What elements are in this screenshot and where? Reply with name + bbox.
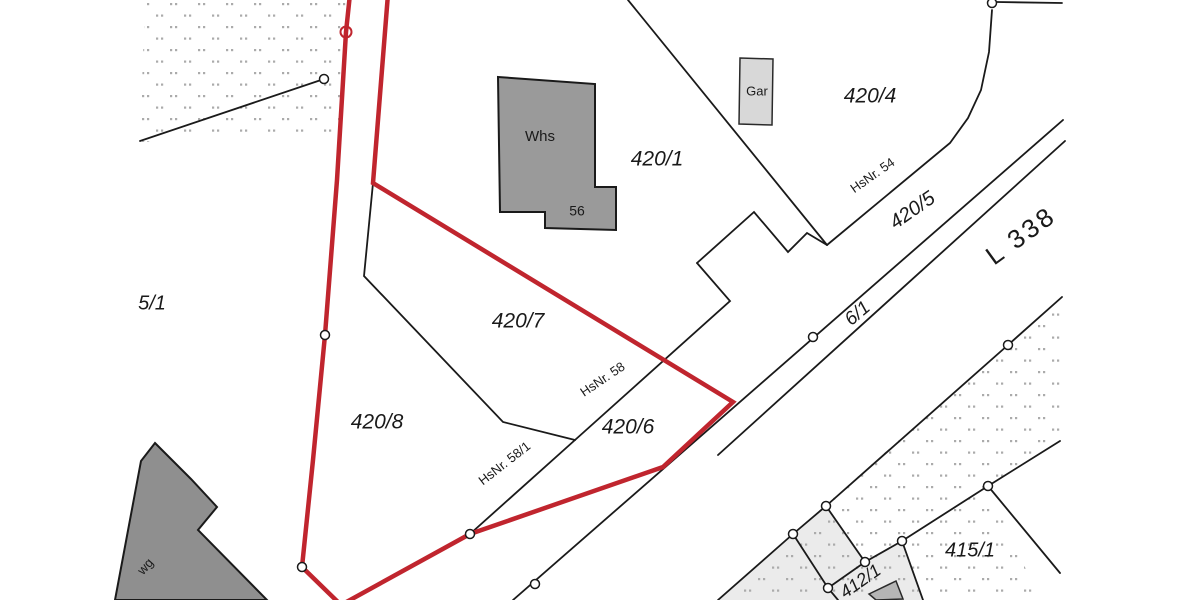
cadastral-map-stage: Whs56420/1Gar420/4HsNr. 54420/5L 3386/14… bbox=[0, 0, 1200, 600]
boundary-point-marker bbox=[298, 563, 307, 572]
parcel-420-7: 420/7 bbox=[492, 310, 546, 333]
building-label-gar: Gar bbox=[746, 83, 768, 98]
boundary-point-marker bbox=[984, 482, 993, 491]
boundary-point-marker bbox=[531, 580, 540, 589]
boundary-point-marker bbox=[809, 333, 818, 342]
parcel-420-6: 420/6 bbox=[602, 416, 655, 439]
parcel-420-1: 420/1 bbox=[631, 148, 684, 171]
boundary-point-marker bbox=[822, 502, 831, 511]
boundary-point-marker bbox=[898, 537, 907, 546]
boundary-point-marker bbox=[789, 530, 798, 539]
building-label-whs: Whs bbox=[525, 128, 555, 145]
parcel-415-1: 415/1 bbox=[945, 539, 995, 561]
house-number-56: 56 bbox=[569, 203, 585, 219]
boundary-point-marker bbox=[466, 530, 475, 539]
boundary-point-marker bbox=[321, 331, 330, 340]
map-canvas[interactable]: Whs56420/1Gar420/4HsNr. 54420/5L 3386/14… bbox=[0, 0, 1200, 600]
boundary-point-marker bbox=[320, 75, 329, 84]
grassland-dots-northwest bbox=[140, 0, 349, 142]
parcel-420-8: 420/8 bbox=[351, 411, 404, 434]
parcel-5-1: 5/1 bbox=[138, 292, 166, 314]
boundary-top-right bbox=[997, 2, 1062, 3]
boundary-point-marker bbox=[1004, 341, 1013, 350]
boundary-point-marker bbox=[988, 0, 997, 8]
boundary-point-marker bbox=[824, 584, 833, 593]
parcel-420-4: 420/4 bbox=[844, 85, 897, 108]
